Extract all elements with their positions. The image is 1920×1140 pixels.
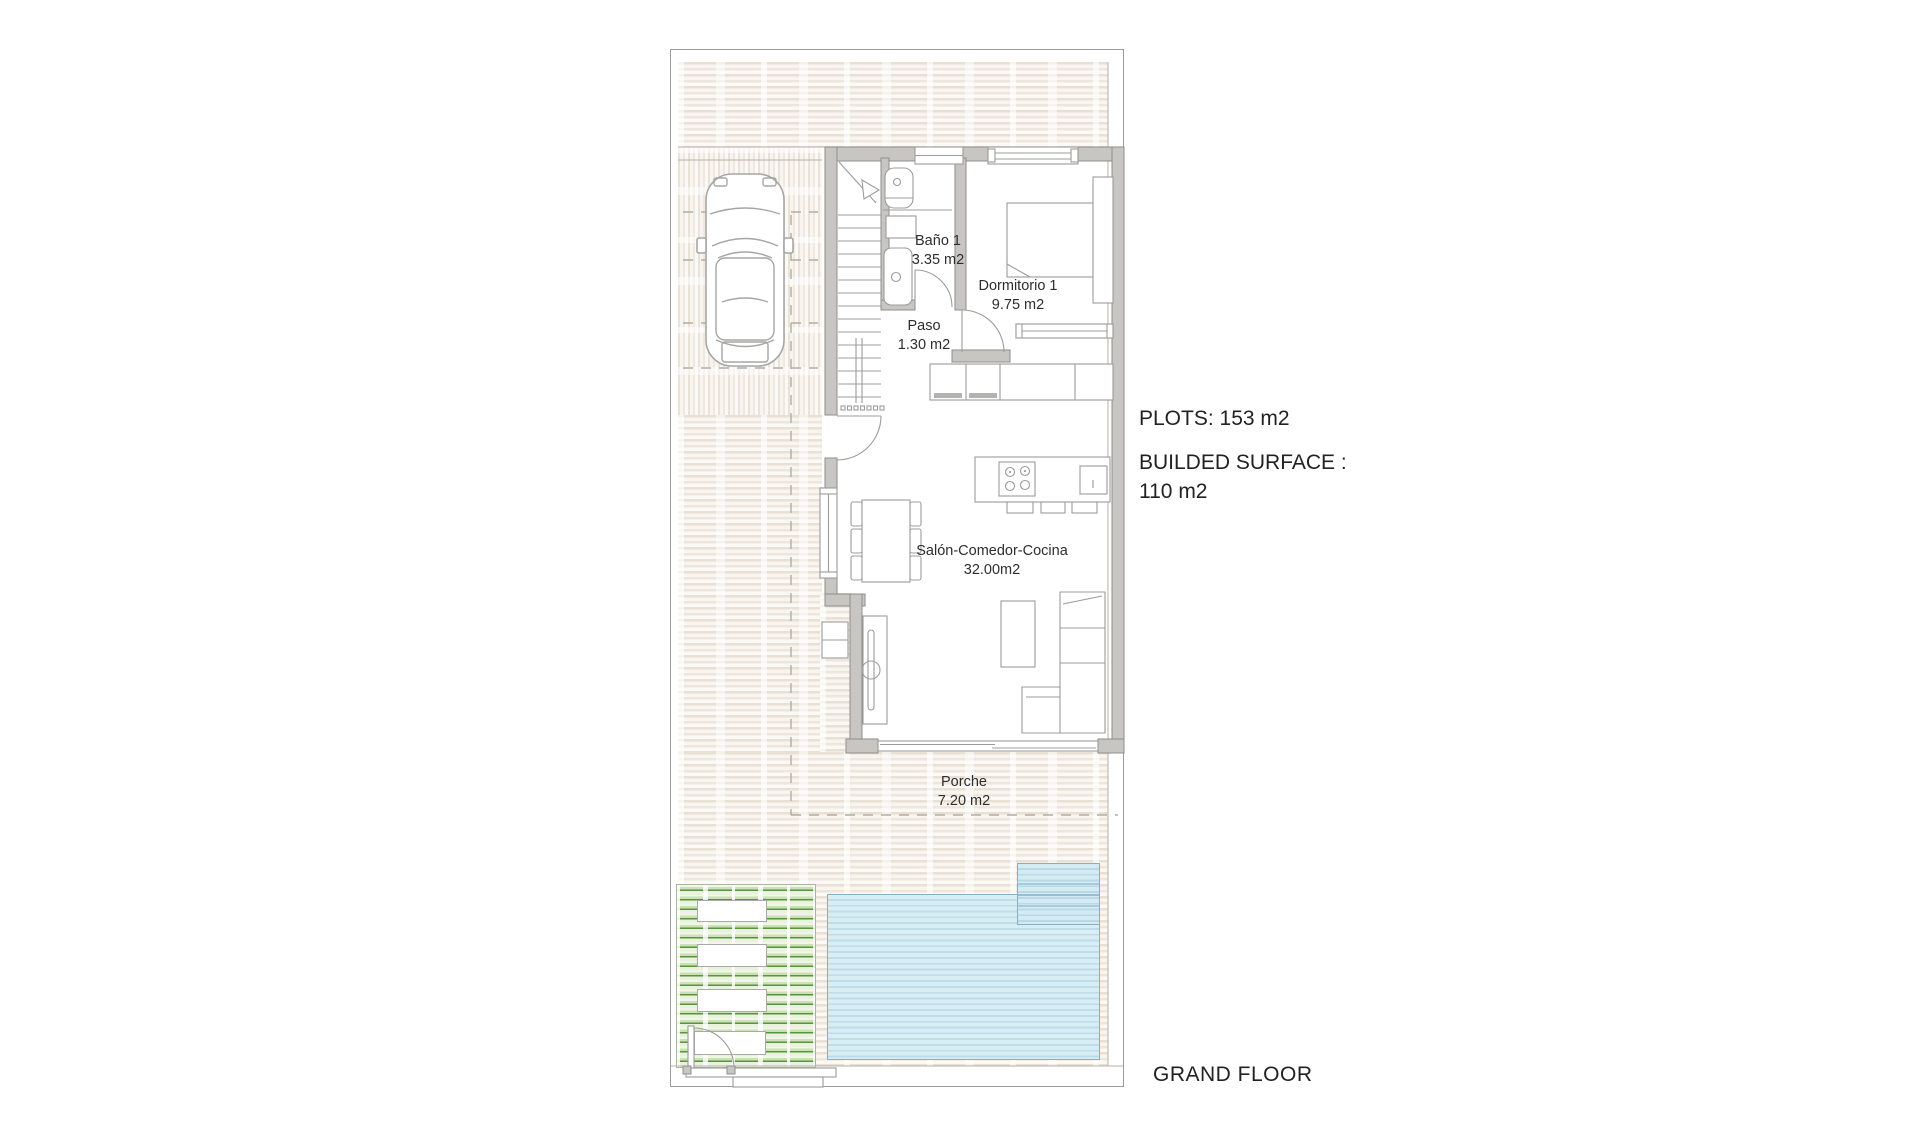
entrance-threshold: [841, 406, 884, 410]
room-name: Dormitorio 1: [979, 277, 1058, 296]
room-area: 9.75 m2: [979, 296, 1058, 315]
built-surface-line1: BUILDED SURFACE :: [1139, 448, 1347, 477]
sink-icon: [884, 248, 912, 305]
palm-tree-icon: [732, 58, 781, 105]
sliding-glass-door: [878, 741, 1098, 751]
room-label-paso: Paso 1.30 m2: [898, 317, 950, 355]
cooktop-icon: [999, 462, 1035, 496]
coffee-table-icon: [1001, 601, 1035, 667]
living-room-furniture: [822, 592, 1105, 733]
plots-annotation: PLOTS: 153 m2: [1139, 404, 1290, 433]
room-label-porche: Porche 7.20 m2: [938, 773, 990, 811]
palm-tree-icon: [939, 56, 984, 104]
bed-icon: [1007, 203, 1093, 277]
room-area: 3.35 m2: [912, 251, 964, 270]
room-name: Porche: [938, 773, 990, 792]
plots-text: PLOTS: 153 m2: [1139, 404, 1290, 433]
room-name: Paso: [898, 317, 950, 336]
garden-gate: [683, 1026, 735, 1074]
stairs-icon: [838, 162, 881, 403]
palm-tree-icon: [786, 62, 826, 97]
palm-tree-icon: [887, 58, 933, 101]
room-label-bano: Baño 1 3.35 m2: [912, 232, 964, 270]
floorplan-canvas: Baño 1 3.35 m2 Dormitorio 1 9.75 m2 Paso…: [0, 0, 1920, 1140]
room-area: 7.20 m2: [938, 792, 990, 811]
palm-tree-icon: [994, 60, 1039, 100]
floor-title-text: GRAND FLOOR: [1153, 1060, 1313, 1089]
room-label-salon: Salón-Comedor-Cocina 32.00m2: [916, 542, 1068, 580]
kitchen-fixtures: [930, 364, 1113, 513]
room-name: Salón-Comedor-Cocina: [916, 542, 1068, 561]
tv-unit-icon: [863, 616, 887, 724]
car-top-view-icon: [697, 174, 793, 366]
palm-tree-icon: [652, 48, 748, 135]
palm-trees-row: [652, 45, 1147, 150]
room-name: Baño 1: [912, 232, 964, 251]
toilet-icon: [885, 168, 913, 208]
dining-table-icon: [851, 500, 921, 582]
floor-title: GRAND FLOOR: [1153, 1060, 1313, 1089]
palm-tree-icon: [833, 55, 882, 104]
built-surface-annotation: BUILDED SURFACE : 110 m2: [1139, 448, 1347, 507]
room-label-dormitorio: Dormitorio 1 9.75 m2: [979, 277, 1058, 315]
pool-step-lines: [1017, 884, 1100, 906]
room-area: 32.00m2: [916, 561, 1068, 580]
room-area: 1.30 m2: [898, 336, 950, 355]
palm-tree-icon: [1029, 45, 1146, 150]
built-surface-line2: 110 m2: [1139, 477, 1347, 506]
